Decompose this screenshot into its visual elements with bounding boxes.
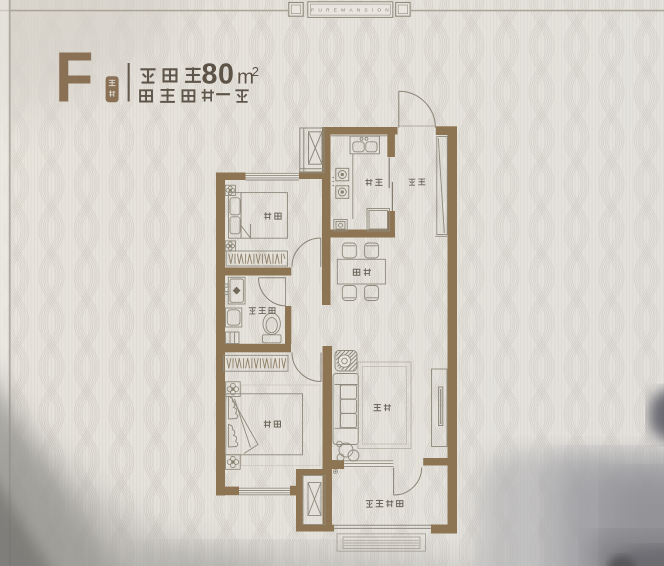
svg-text:PUREMANSION: PUREMANSION — [311, 8, 393, 14]
svg-text:80: 80 — [202, 58, 235, 90]
svg-text:F: F — [55, 38, 93, 118]
svg-text:2: 2 — [252, 64, 259, 79]
